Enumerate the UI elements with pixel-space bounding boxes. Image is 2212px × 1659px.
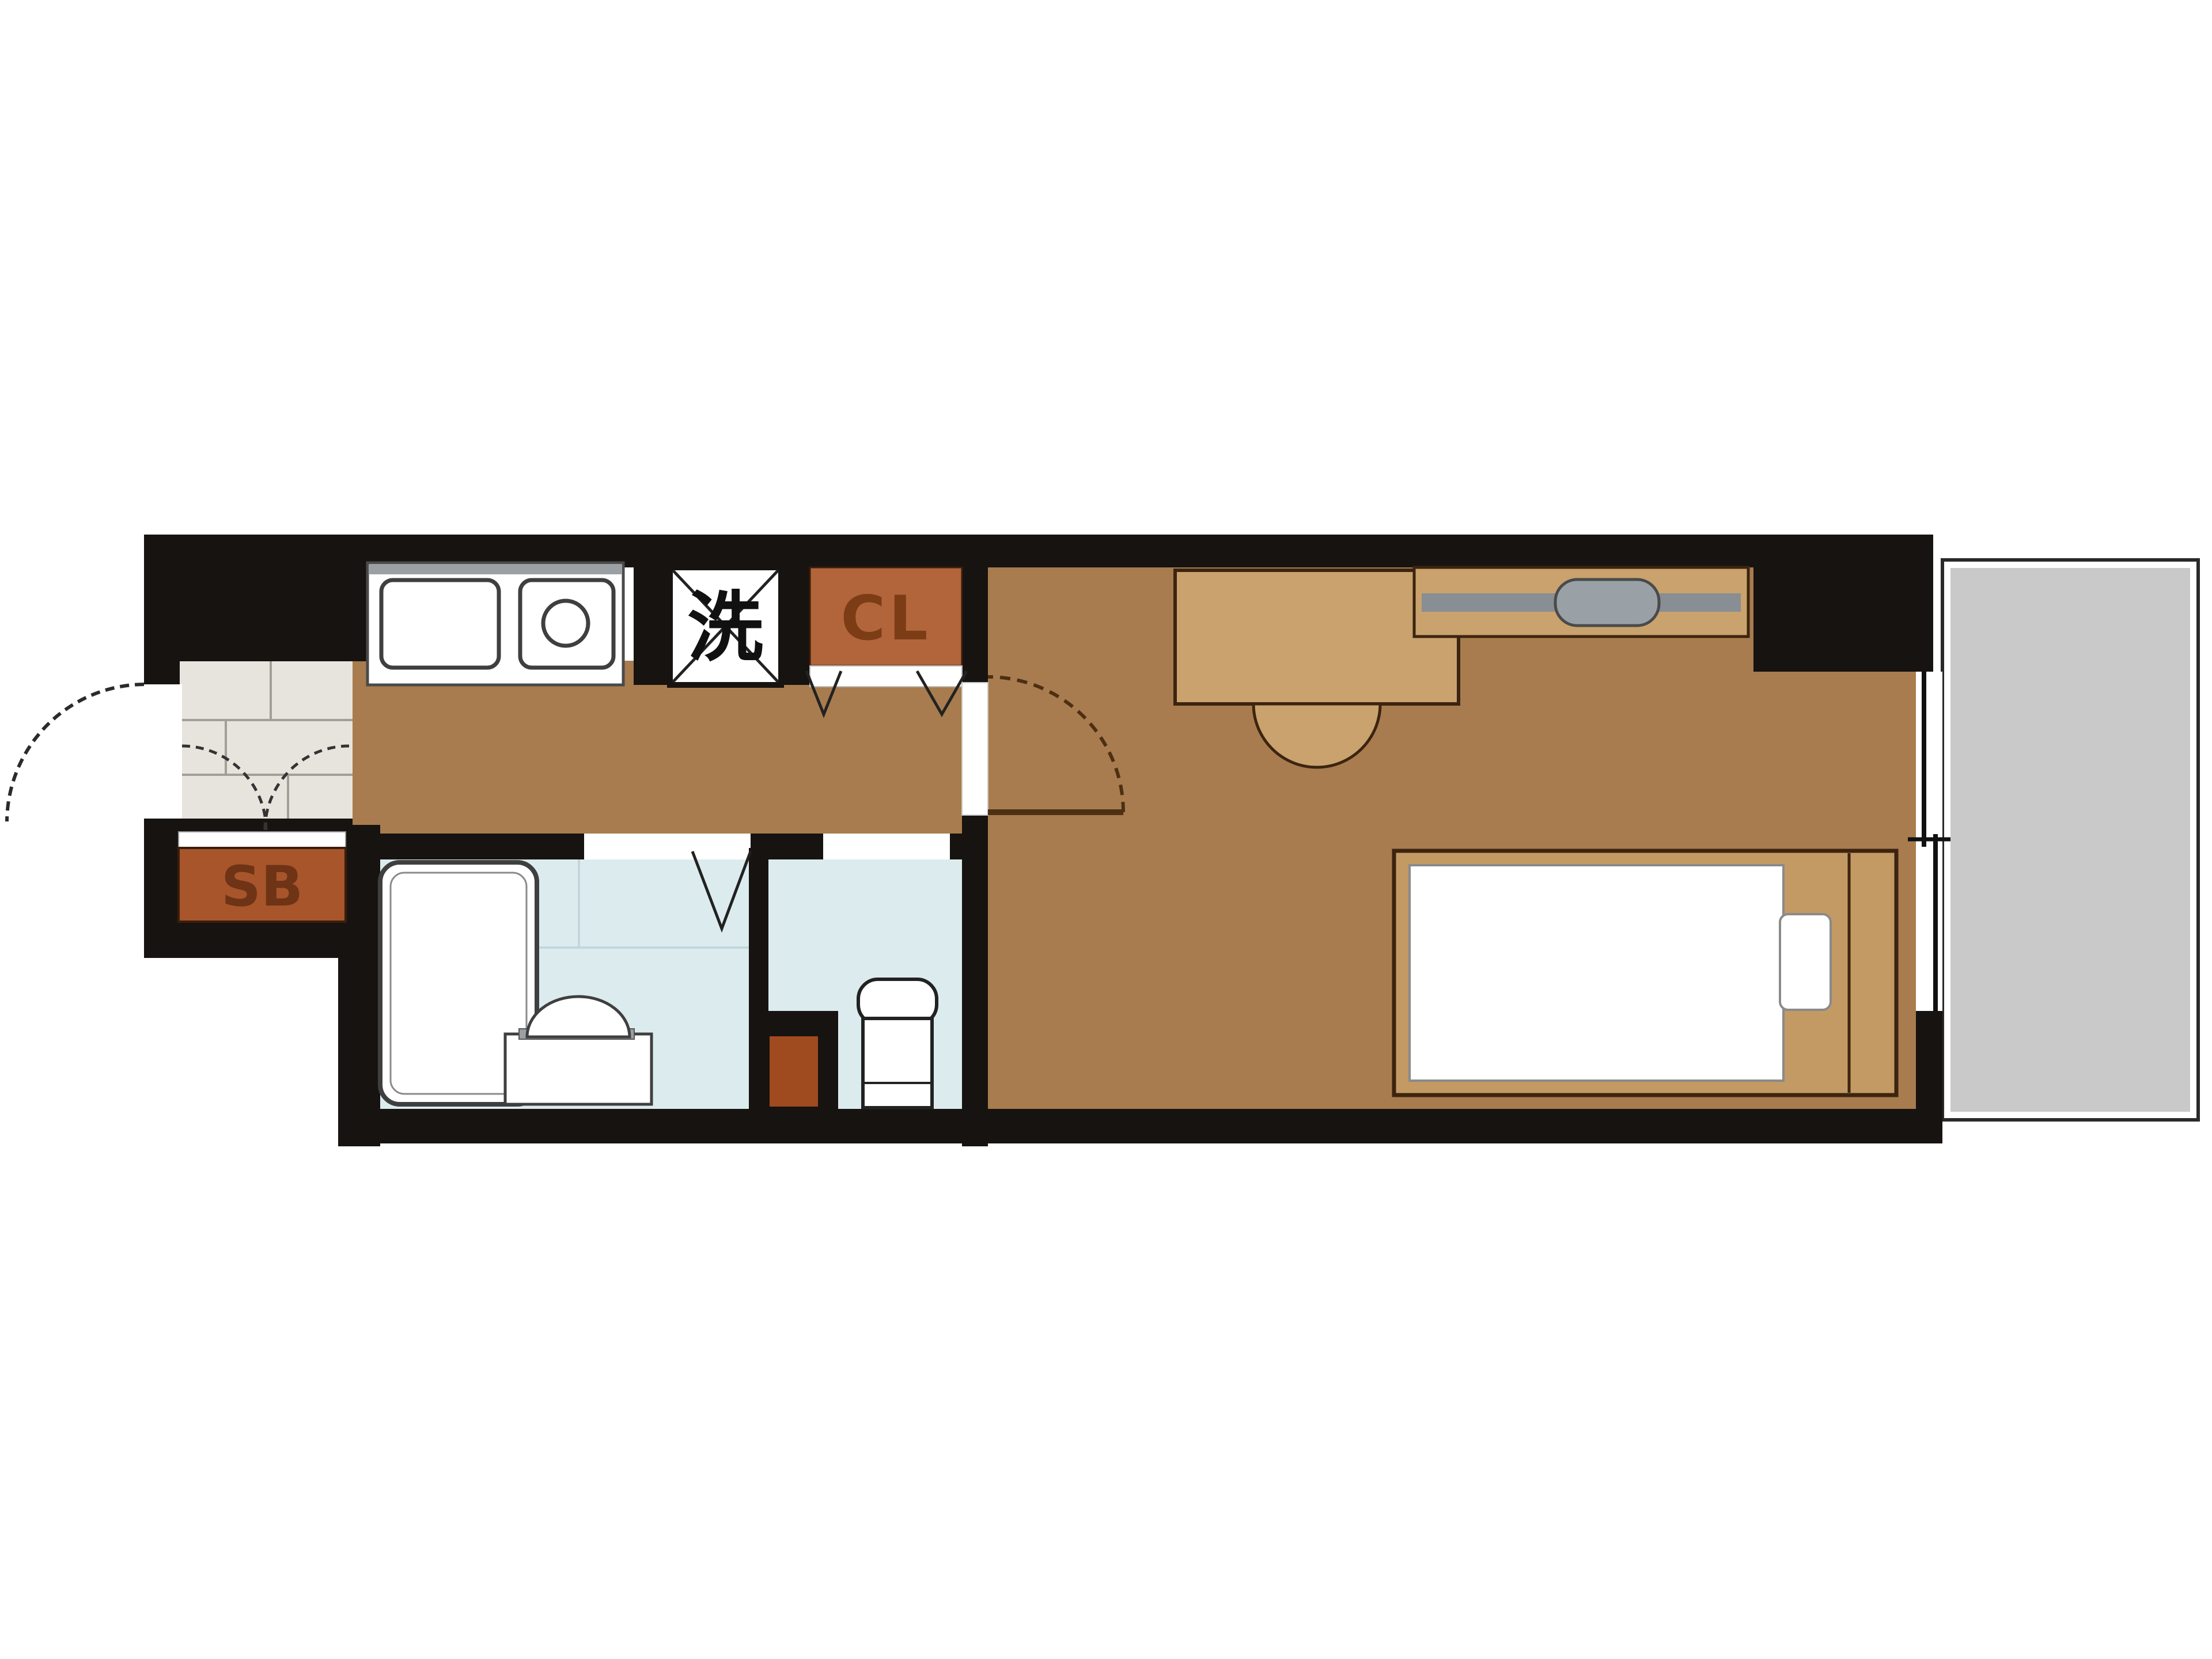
- bed-mattress: [1410, 865, 1783, 1081]
- floor-plan-svg: SB 洗 CL: [0, 0, 2212, 1659]
- kitchen-sink-basin: [381, 580, 499, 668]
- kitchen-counter-back-edge: [369, 564, 622, 574]
- wall-washer-closet-gap: [781, 535, 810, 685]
- bathroom-door-opening: [584, 834, 751, 859]
- closet-label: CL: [840, 583, 931, 654]
- wall-partition-upper: [962, 567, 988, 683]
- wall-bottom: [338, 1109, 1942, 1143]
- toilet-body: [863, 1018, 932, 1108]
- shoe-box-label: SB: [221, 854, 303, 919]
- main-room-door-opening: [962, 683, 988, 815]
- wall-window-bottom: [1916, 1011, 1942, 1143]
- balcony-deck: [1950, 568, 2190, 1112]
- washing-machine-label: 洗: [687, 584, 763, 672]
- kitchen-burner-icon: [543, 601, 588, 646]
- tv-center-unit: [1555, 579, 1659, 626]
- wall-partition-lower: [962, 815, 988, 1146]
- bathroom-vanity: [505, 1034, 652, 1104]
- pillar-top-right: [1753, 535, 1933, 672]
- entrance-door-opening: [142, 684, 182, 823]
- wall-bath-toilet-divider: [749, 848, 768, 1011]
- floor-plan-page: SB 洗 CL: [0, 0, 2212, 1659]
- toilet-corner-cabinet: [770, 1036, 818, 1107]
- wall-counter-washer-gap: [634, 535, 670, 685]
- shoe-box-front-strip: [179, 832, 346, 848]
- closet-door-track: [810, 666, 962, 687]
- toilet-door-opening: [823, 834, 950, 859]
- entrance-tile-floor: [179, 661, 353, 827]
- bed-pillow: [1780, 914, 1831, 1010]
